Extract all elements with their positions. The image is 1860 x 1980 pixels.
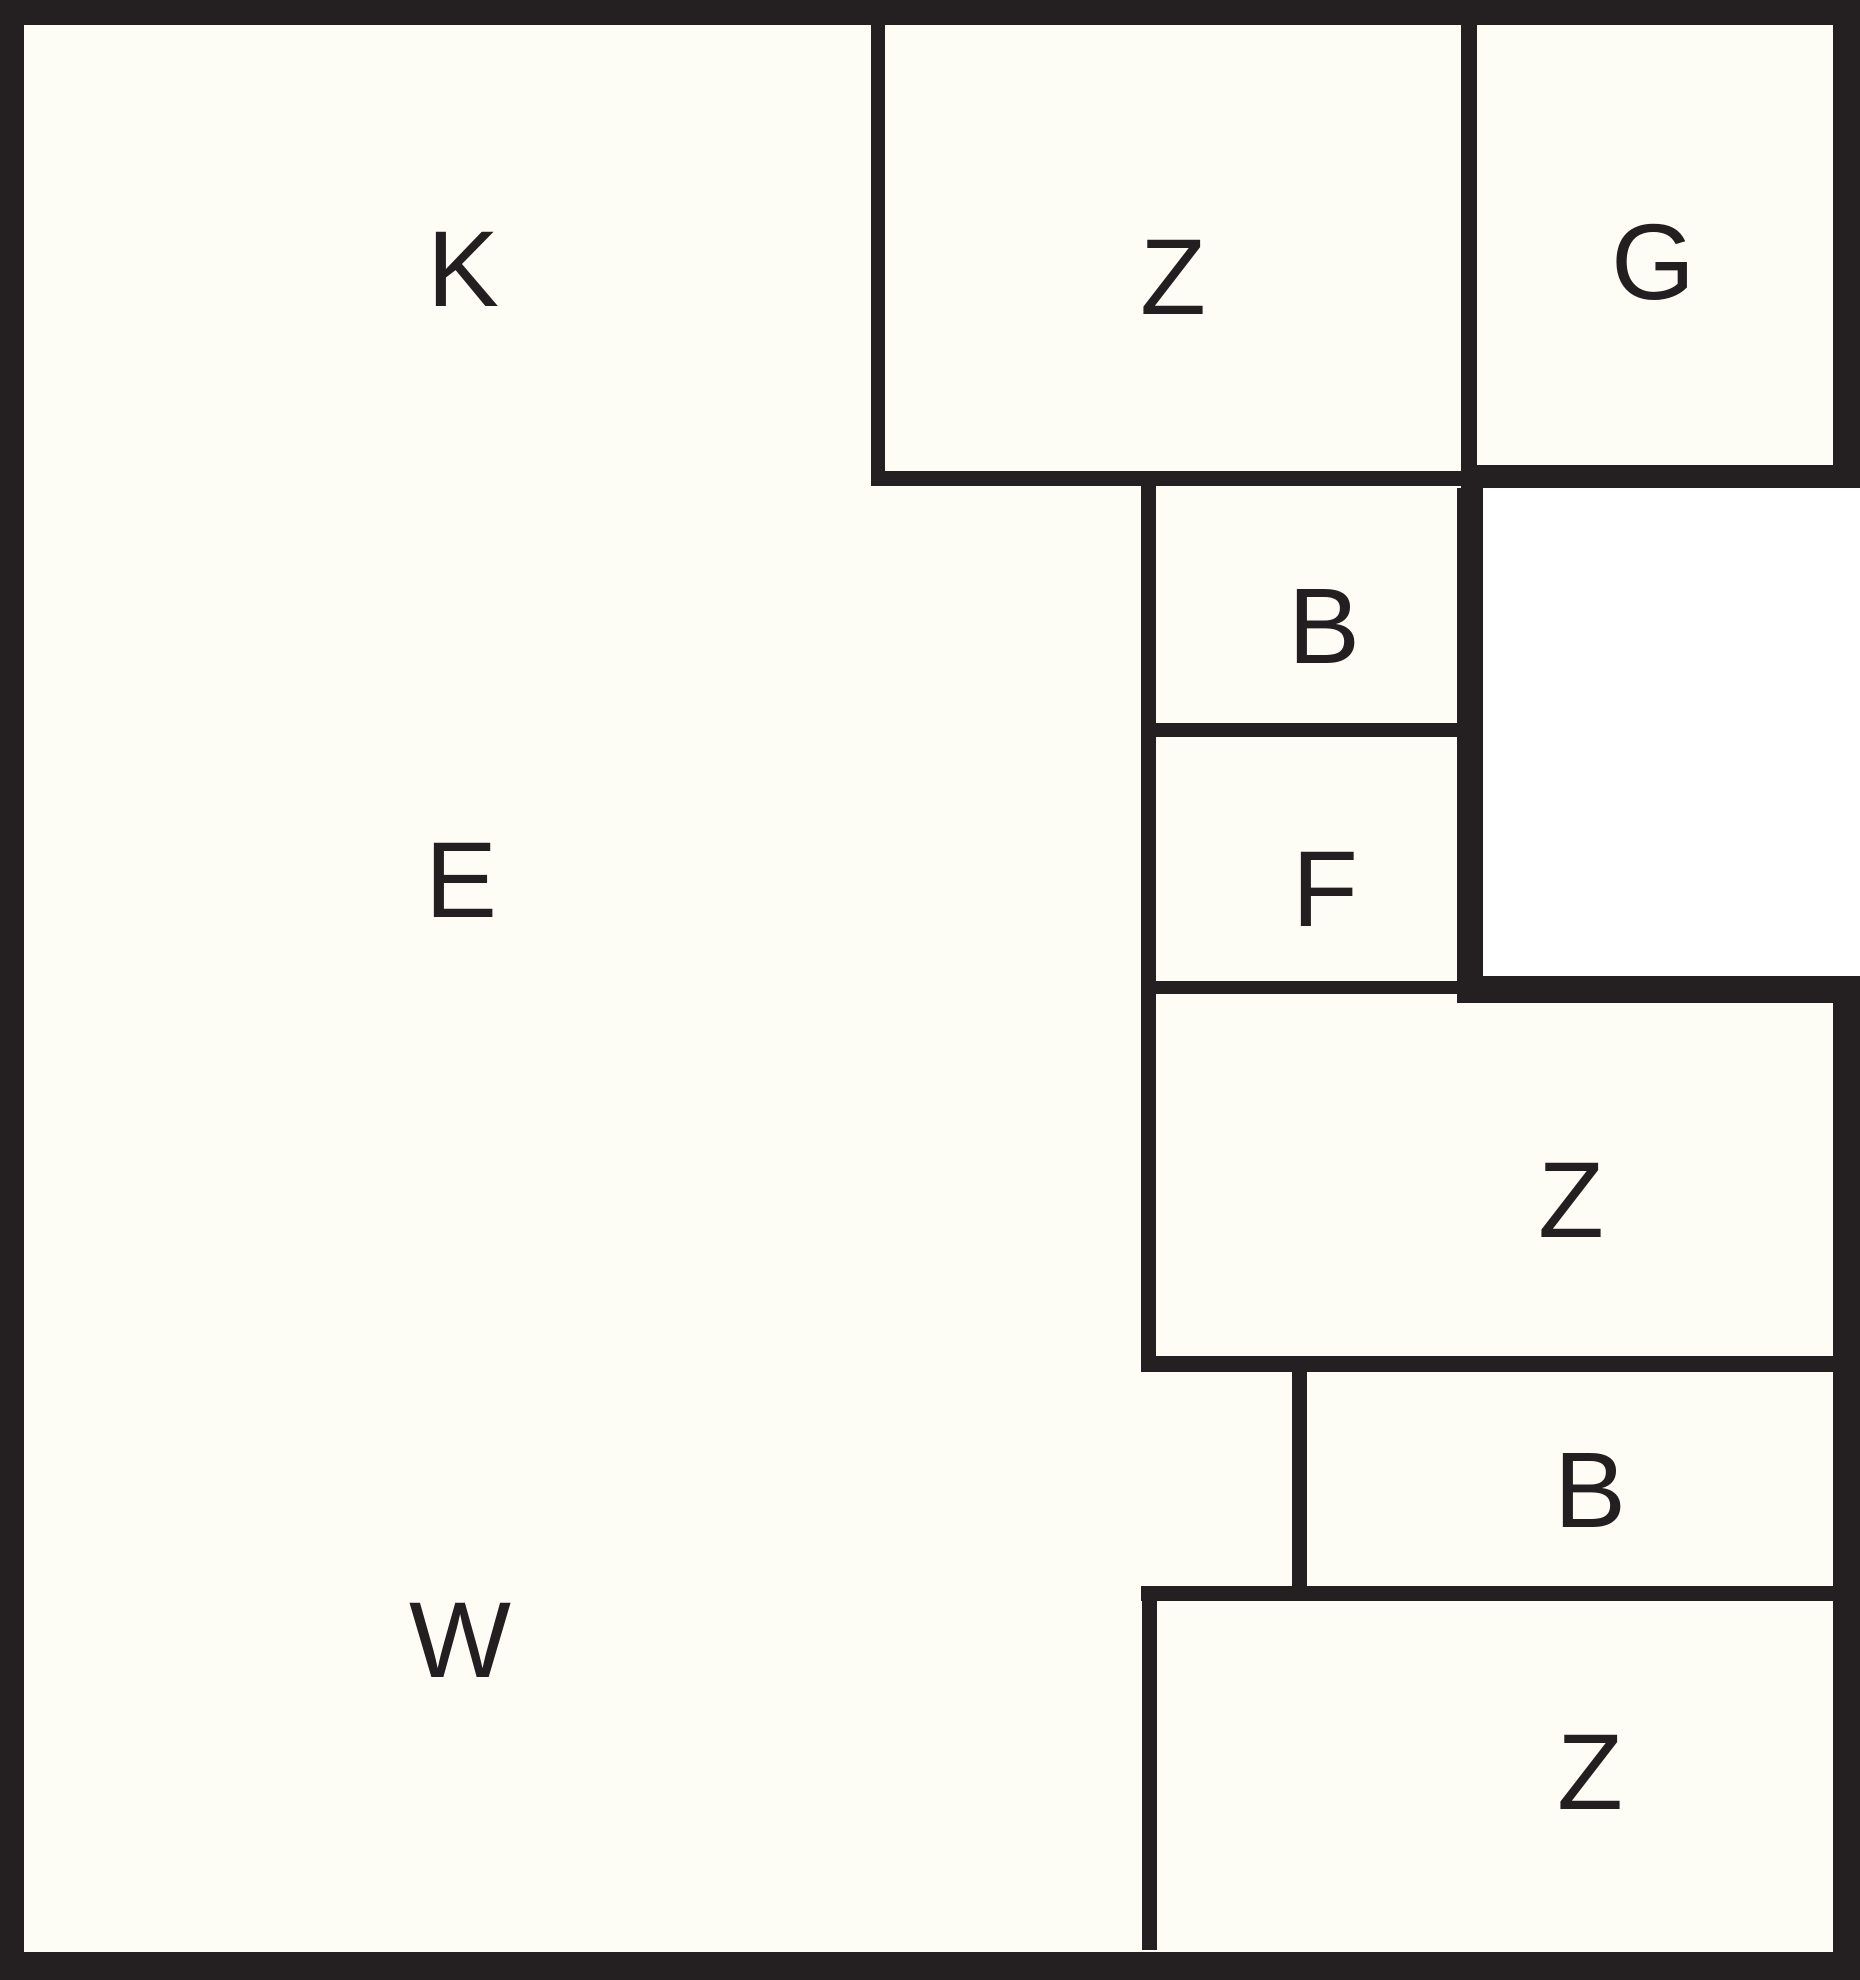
room-label-g: G [1611, 208, 1695, 316]
outer-wall-right-lower [1833, 976, 1860, 1980]
wall-z-g [1461, 25, 1477, 465]
room-label-lower-b: B [1554, 1436, 1626, 1544]
room-label-w: W [409, 1586, 511, 1694]
wall-lower-b-bottom [1141, 1586, 1833, 1601]
floor-plan: KZGBEFZBWZ [0, 0, 1860, 1980]
room-label-mid-z: Z [1538, 1146, 1604, 1254]
room-label-upper-b: B [1288, 572, 1360, 680]
outer-wall-left [0, 0, 24, 1980]
wall-below-top-z [871, 471, 1461, 486]
wall-k-z [871, 25, 885, 471]
exterior-notch [1483, 488, 1860, 976]
room-label-top-z: Z [1140, 223, 1206, 331]
room-label-bottom-z: Z [1557, 1718, 1623, 1826]
wall-lower-b-left [1292, 1372, 1307, 1586]
room-label-k: K [427, 215, 499, 323]
wall-below-g [1461, 465, 1860, 488]
wall-mid-z-top [1457, 976, 1860, 1003]
wall-mid-z-bottom [1141, 1356, 1833, 1372]
room-label-f: F [1292, 835, 1358, 943]
wall-b-f-divider [1156, 723, 1457, 737]
room-label-e: E [425, 826, 497, 934]
wall-bf-left [1141, 486, 1156, 1356]
outer-wall-right-upper [1833, 0, 1860, 488]
wall-bf-right [1457, 488, 1483, 1003]
outer-wall-top [0, 0, 1860, 25]
wall-below-f [1156, 981, 1457, 994]
outer-wall-bottom [0, 1952, 1860, 1980]
wall-bottom-z-left [1142, 1601, 1157, 1950]
